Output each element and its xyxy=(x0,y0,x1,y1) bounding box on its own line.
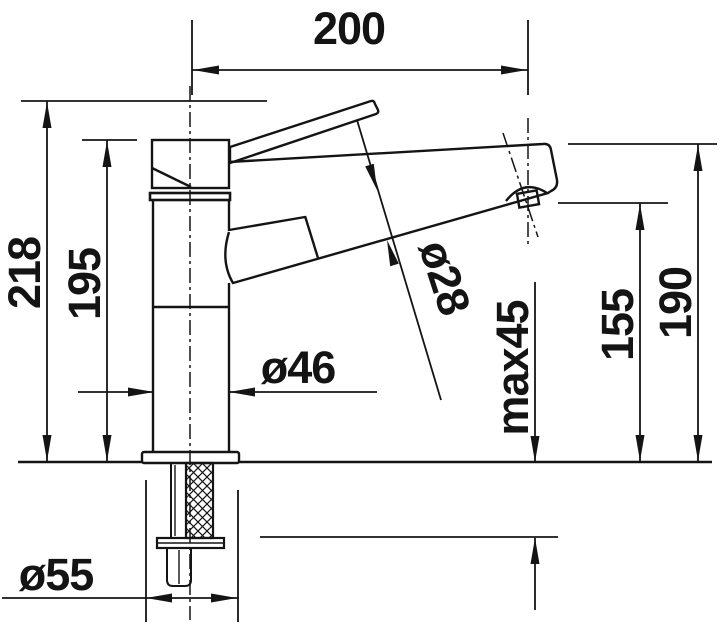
supply-pipe xyxy=(171,463,186,538)
centerlines xyxy=(190,86,538,620)
arrow-55-right xyxy=(211,594,237,603)
arrow-155-bottom xyxy=(636,435,645,461)
label-spout-diameter: ø28 xyxy=(409,234,481,321)
arrow-190-bottom xyxy=(694,435,703,461)
arrow-200-right xyxy=(501,66,527,75)
arrow-max45-bottom xyxy=(531,538,540,564)
dimension-labels: 200 218 195 155 190 max45 ø28 ø46 ø55 xyxy=(0,3,701,600)
label-overall-height: 218 xyxy=(0,237,50,309)
arrow-46-left xyxy=(128,388,154,397)
arrow-200-left xyxy=(193,66,219,75)
label-outlet-height: 155 xyxy=(592,289,643,361)
technical-drawing-canvas: 200 218 195 155 190 max45 ø28 ø46 ø55 xyxy=(0,0,725,625)
arrow-190-top xyxy=(694,145,703,171)
arrow-218-bottom xyxy=(43,435,52,461)
nozzle-joint-line xyxy=(305,216,318,258)
label-body-diameter: ø46 xyxy=(261,342,336,393)
arrow-55-left xyxy=(146,594,172,603)
label-spout-end-height: 190 xyxy=(650,267,701,339)
arrow-195-top xyxy=(103,141,112,167)
aerator-centerline-tilted xyxy=(503,133,538,237)
arrow-max45-top xyxy=(531,436,540,462)
arrow-46-right xyxy=(229,388,255,397)
arrow-218-top xyxy=(43,102,52,128)
arrow-28-top xyxy=(365,164,377,190)
arrow-195-bottom xyxy=(103,435,112,461)
spout-seam-line xyxy=(229,217,305,230)
threaded-shank xyxy=(186,463,213,538)
faucet-dimension-drawing: 200 218 195 155 190 max45 ø28 ø46 ø55 xyxy=(0,0,725,625)
arrow-155-top xyxy=(636,204,645,230)
label-max-deck-thickness: max45 xyxy=(487,300,538,435)
label-top-width: 200 xyxy=(313,3,385,54)
label-body-height: 195 xyxy=(59,248,110,320)
cap-chamfer-line xyxy=(152,168,191,187)
label-base-diameter: ø55 xyxy=(19,549,94,600)
